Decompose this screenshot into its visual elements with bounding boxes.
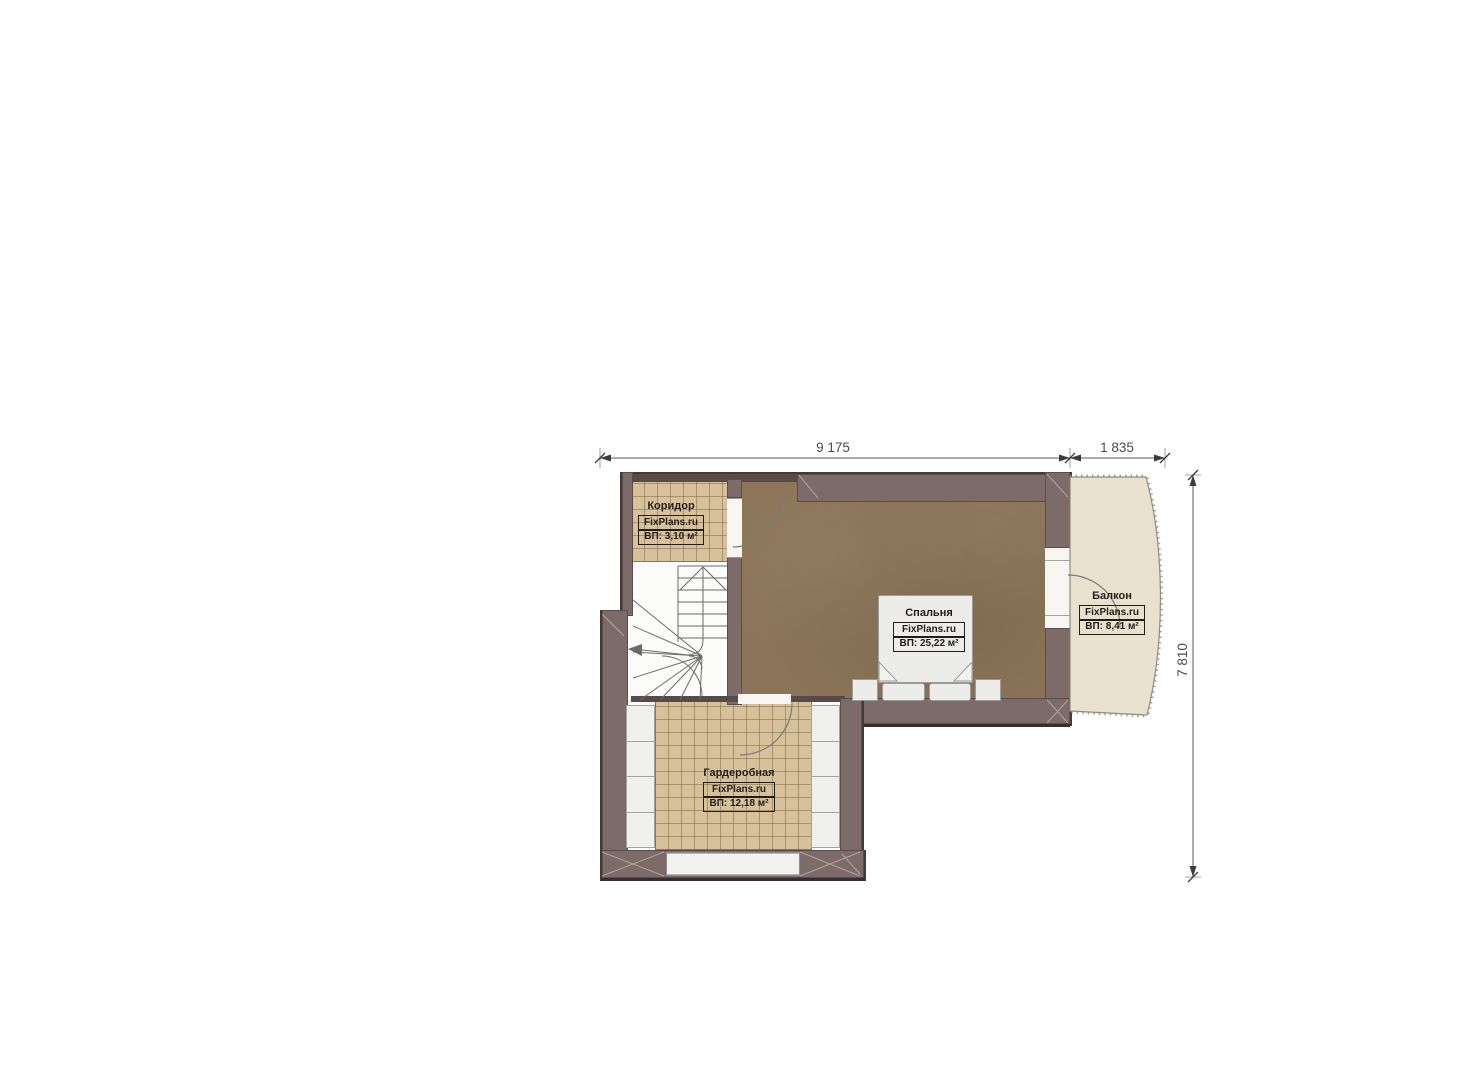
room-name: Балкон: [1092, 590, 1132, 602]
room-label-balcony: Балкон FixPlans.ru ВП: 8,41 м²: [1052, 590, 1172, 635]
room-area: ВП: 25,22 м²: [893, 636, 964, 652]
door-arc-corridor: [733, 500, 780, 547]
dim-top-main-label: 9 175: [773, 440, 893, 456]
room-area: ВП: 3,10 м²: [638, 529, 704, 545]
plan-linework: [0, 0, 1473, 1080]
room-label-bedroom: Спальня FixPlans.ru ВП: 25,22 м²: [869, 607, 989, 652]
room-area: ВП: 12,18 м²: [703, 796, 774, 812]
dim-top-right-label: 1 835: [1057, 440, 1177, 456]
room-area: ВП: 8,41 м²: [1079, 619, 1145, 635]
bed-corner-marks: [879, 662, 972, 681]
room-name: Коридор: [647, 500, 694, 512]
room-name: Гардеробная: [703, 767, 774, 779]
room-label-corridor: Коридор FixPlans.ru ВП: 3,10 м²: [611, 500, 731, 545]
room-label-box: FixPlans.ru ВП: 25,22 м²: [893, 622, 964, 652]
room-label-box: FixPlans.ru ВП: 12,18 м²: [703, 782, 774, 812]
room-label-box: FixPlans.ru ВП: 8,41 м²: [1079, 605, 1145, 635]
dim-right-side-label: 7 810: [1175, 600, 1191, 720]
room-name: Спальня: [905, 607, 953, 619]
door-arc-wardrobe: [740, 703, 792, 755]
floor-plan-canvas: Коридор FixPlans.ru ВП: 3,10 м² Спальня …: [0, 0, 1473, 1080]
staircase-linework: [628, 566, 727, 700]
room-label-box: FixPlans.ru ВП: 3,10 м²: [638, 515, 704, 545]
room-label-wardrobe: Гардеробная FixPlans.ru ВП: 12,18 м²: [679, 767, 799, 812]
